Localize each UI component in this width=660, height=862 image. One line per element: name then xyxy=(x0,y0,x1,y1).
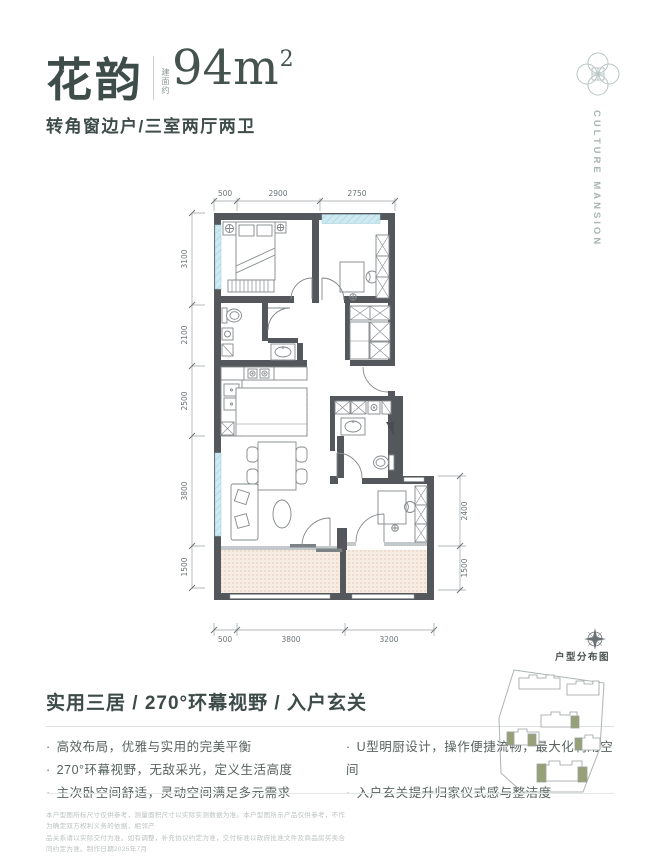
compass-icon xyxy=(584,628,606,650)
dim-bottom-1: 3800 xyxy=(281,635,300,644)
dim-top-0: 500 xyxy=(218,189,233,198)
dim-top-1: 2900 xyxy=(268,189,287,198)
dim-left-1: 2100 xyxy=(180,325,189,344)
area-superscript: 2 xyxy=(280,47,294,72)
brand-wordmark: CULTURE MANSION xyxy=(591,110,602,247)
feature-text: 270°环幕视野，无敌采光，定义生活高度 xyxy=(57,763,293,777)
disclaimer-line: 品关系请以实际交付为准。如有调整，补充协议约定为准，交付标准以政府批准文件及商品… xyxy=(46,833,350,856)
site-buildings xyxy=(507,675,600,782)
site-plan: 户型分布图 xyxy=(488,626,653,821)
area-number: 94m xyxy=(172,40,279,96)
balcony xyxy=(221,550,427,593)
dim-left-3: 3800 xyxy=(180,481,189,500)
quatrefoil-logo-icon xyxy=(572,48,624,100)
dim-bottom-0: 500 xyxy=(218,635,233,644)
dim-right-1: 1500 xyxy=(460,558,469,577)
dim-left-4: 1500 xyxy=(180,557,189,576)
site-plan-label: 户型分布图 xyxy=(554,651,610,663)
feature-text: 高效布局，优雅与实用的完美平衡 xyxy=(57,740,252,754)
poster-page: 花韵 建面约 94m2 转角窗边户/三室两厅两卫 CULTURE MANSION xyxy=(0,0,660,862)
title-divider xyxy=(153,56,154,100)
bullet-dot-icon: · xyxy=(46,763,51,777)
disclaimer: 本户型图所标尺寸仅供参考，测量面积尺寸以实际实测数据为准。本户型图所示产品仅供参… xyxy=(46,810,350,856)
disclaimer-line: 本户型图所标尺寸仅供参考，测量面积尺寸以实际实测数据为准。本户型图所示产品仅供参… xyxy=(46,810,350,833)
bullet-dot-icon: · xyxy=(346,740,351,754)
feature-bullet: ·270°环幕视野，无敌采光，定义生活高度 xyxy=(46,759,346,782)
furniture xyxy=(221,222,427,546)
dim-right-0: 2400 xyxy=(460,501,469,520)
dim-top-2: 2750 xyxy=(347,189,366,198)
page-title: 花韵 xyxy=(46,44,144,110)
features-left-column: ·高效布局，优雅与实用的完美平衡 ·270°环幕视野，无敌采光，定义生活高度 ·… xyxy=(46,736,346,805)
area-prefix-label: 建面约 xyxy=(160,68,171,95)
floor-plan: 500 2900 2750 3100 2100 2500 3800 1500 2… xyxy=(172,178,480,655)
dim-left-2: 2500 xyxy=(180,391,189,410)
area-value: 94m2 xyxy=(172,40,294,96)
unit-subtitle: 转角窗边户/三室两厅两卫 xyxy=(46,112,256,137)
feature-bullet: ·高效布局，优雅与实用的完美平衡 xyxy=(46,736,346,759)
dim-bottom-2: 3200 xyxy=(379,635,398,644)
bullet-dot-icon: · xyxy=(46,740,51,754)
dim-left-0: 3100 xyxy=(180,249,189,268)
